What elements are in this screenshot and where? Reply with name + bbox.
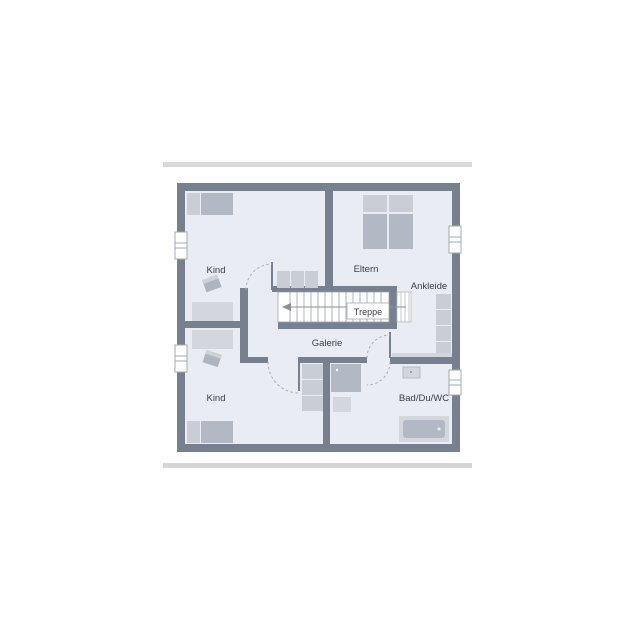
bed-symbol-kind-bottom	[201, 421, 233, 443]
room-label-eltern: Eltern	[354, 264, 379, 275]
room-label-treppe: Treppe	[354, 307, 382, 317]
washbasin-drain-icon	[410, 371, 412, 373]
window-symbol	[175, 345, 187, 372]
wall-kind-eltern	[325, 191, 333, 292]
shelf-symbol	[333, 397, 351, 412]
double-bed-mattress-right	[389, 214, 413, 249]
room-label-galerie: Galerie	[312, 338, 343, 349]
wall-ankleide-bad	[390, 357, 452, 364]
room-label-kind-top: Kind	[206, 265, 225, 276]
floorplan-image[interactable]: Treppe	[0, 0, 636, 636]
shower-drain-icon	[336, 369, 338, 371]
double-bed-pillow-right	[389, 195, 413, 212]
wardrobe-symbol	[436, 294, 451, 309]
room-label-kind-bottom: Kind	[206, 393, 225, 404]
closet-symbol	[302, 396, 323, 411]
sideboard-symbol	[305, 271, 318, 288]
bath-counter-symbol	[392, 353, 452, 357]
wardrobe-symbol	[436, 326, 451, 341]
bed-pillow-kind-top	[187, 193, 200, 215]
wall-kind-kind	[177, 321, 244, 328]
wall-kind-bad	[323, 363, 330, 444]
closet-symbol	[302, 380, 323, 395]
shower-symbol	[331, 364, 361, 392]
window-symbol	[449, 226, 461, 253]
double-bed-pillow-left	[363, 195, 387, 212]
wardrobe-symbol	[436, 310, 451, 325]
window-symbol	[449, 370, 461, 395]
window-symbol	[175, 232, 187, 259]
sideboard-symbol	[291, 271, 304, 288]
wall-kind-galerie	[240, 288, 248, 363]
bottom-separator-bar	[163, 463, 472, 468]
desk-symbol-kind-bottom	[192, 330, 233, 349]
sideboard-symbol	[277, 271, 290, 288]
wall-stairs-bottom	[278, 322, 397, 329]
bed-symbol-kind-top	[201, 193, 233, 215]
wall-galerie-kind-stub	[240, 357, 268, 363]
wall-stairs-top	[272, 286, 397, 292]
top-separator-bar	[163, 162, 472, 167]
closet-symbol	[302, 364, 323, 379]
floorplan-page: Treppe	[0, 0, 636, 636]
double-bed-mattress-left	[363, 214, 387, 249]
bathtub-drain-icon	[438, 428, 441, 431]
room-label-ankleide: Ankleide	[411, 281, 447, 292]
desk-symbol-kind-top	[192, 302, 233, 321]
room-label-bad: Bad/Du/WC	[399, 393, 449, 404]
wall-galerie-bad	[298, 357, 367, 363]
bed-pillow-kind-bottom	[187, 421, 200, 443]
